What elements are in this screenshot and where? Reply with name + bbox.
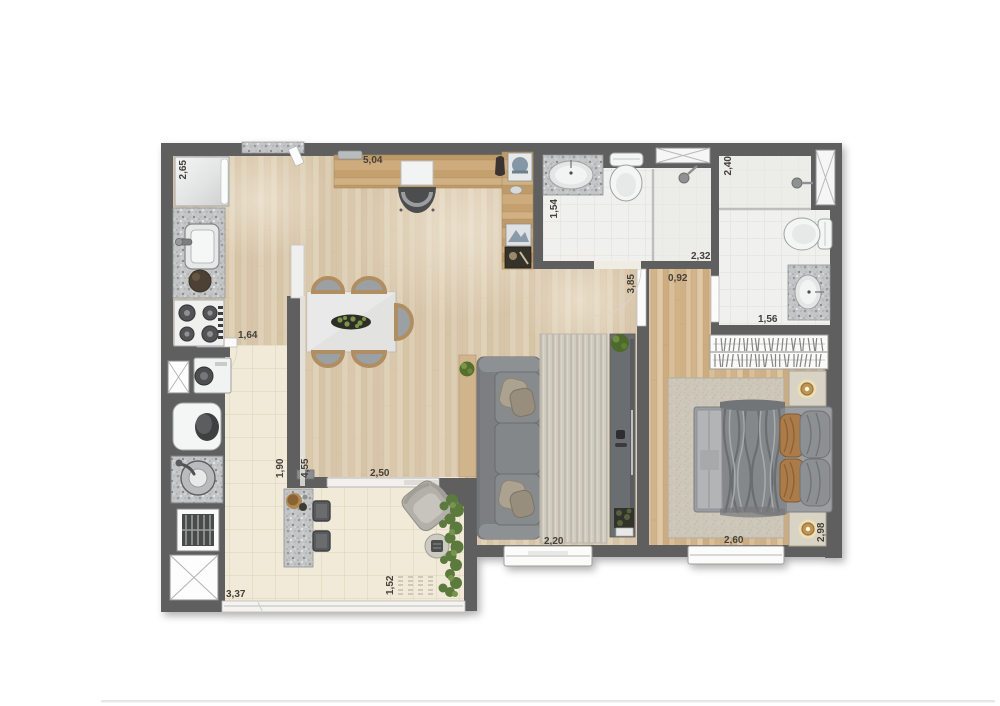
- svg-text:2,98: 2,98: [816, 522, 827, 542]
- svg-text:4,55: 4,55: [300, 458, 311, 478]
- svg-text:2,20: 2,20: [544, 536, 564, 547]
- svg-text:1,54: 1,54: [549, 199, 560, 219]
- svg-text:2,65: 2,65: [178, 160, 189, 180]
- svg-text:5,04: 5,04: [363, 155, 383, 166]
- svg-text:2,32: 2,32: [691, 251, 711, 262]
- svg-text:1,52: 1,52: [385, 575, 396, 595]
- svg-text:1,64: 1,64: [238, 330, 258, 341]
- svg-text:2,50: 2,50: [370, 468, 390, 479]
- svg-text:3,85: 3,85: [626, 274, 637, 294]
- svg-text:2,60: 2,60: [724, 535, 744, 546]
- svg-text:0,92: 0,92: [668, 273, 688, 284]
- svg-text:1,56: 1,56: [758, 314, 778, 325]
- svg-text:1,90: 1,90: [275, 458, 286, 478]
- svg-text:3,37: 3,37: [226, 589, 246, 600]
- svg-text:2,40: 2,40: [723, 156, 734, 176]
